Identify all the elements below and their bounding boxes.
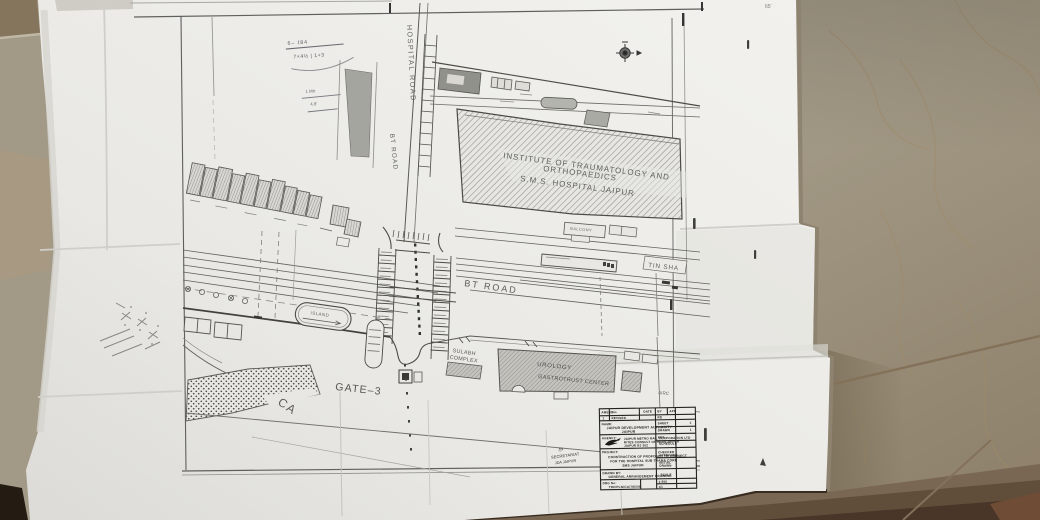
svg-text:SCALE: SCALE xyxy=(660,473,671,477)
svg-text:AGENCY:: AGENCY: xyxy=(602,436,617,440)
svg-text:JAIPUR: JAIPUR xyxy=(622,430,636,434)
svg-text:A1: A1 xyxy=(659,485,663,489)
svg-text:1: 1 xyxy=(690,428,692,432)
svg-text:APPROVED: APPROVED xyxy=(659,453,678,457)
svg-text:1 Mtr: 1 Mtr xyxy=(305,88,316,94)
svg-text:KEY: KEY xyxy=(658,435,665,439)
svg-text:REVISED: REVISED xyxy=(611,416,626,420)
svg-text:PROJECT:: PROJECT: xyxy=(602,450,619,454)
svg-text:JAIPUR RJ 302: JAIPUR RJ 302 xyxy=(624,443,648,447)
svg-text:RD: RD xyxy=(657,415,662,419)
svg-text:65′: 65′ xyxy=(765,4,772,10)
svg-text:DRAWN: DRAWN xyxy=(658,428,670,432)
svg-text:TRF/PLN/GA/785/08: TRF/PLN/GA/785/08 xyxy=(609,485,641,490)
svg-text:No: No xyxy=(612,410,616,414)
svg-text:DRAWN: DRAWN xyxy=(659,464,671,468)
svg-text:SHEET: SHEET xyxy=(658,421,669,425)
svg-text:4.8′: 4.8′ xyxy=(310,101,317,106)
svg-text:1:500: 1:500 xyxy=(659,480,668,484)
svg-text:SMS JAIPUR: SMS JAIPUR xyxy=(622,463,644,467)
svg-text:1: 1 xyxy=(690,421,692,425)
svg-text:BY: BY xyxy=(657,409,662,413)
svg-text:APP: APP xyxy=(669,409,676,413)
svg-text:DATE: DATE xyxy=(643,410,652,414)
svg-text:1: 1 xyxy=(602,416,604,420)
svg-text:SCHEDULE: SCHEDULE xyxy=(659,441,677,445)
svg-text:ƒƝ: ƒƝ xyxy=(558,446,564,452)
